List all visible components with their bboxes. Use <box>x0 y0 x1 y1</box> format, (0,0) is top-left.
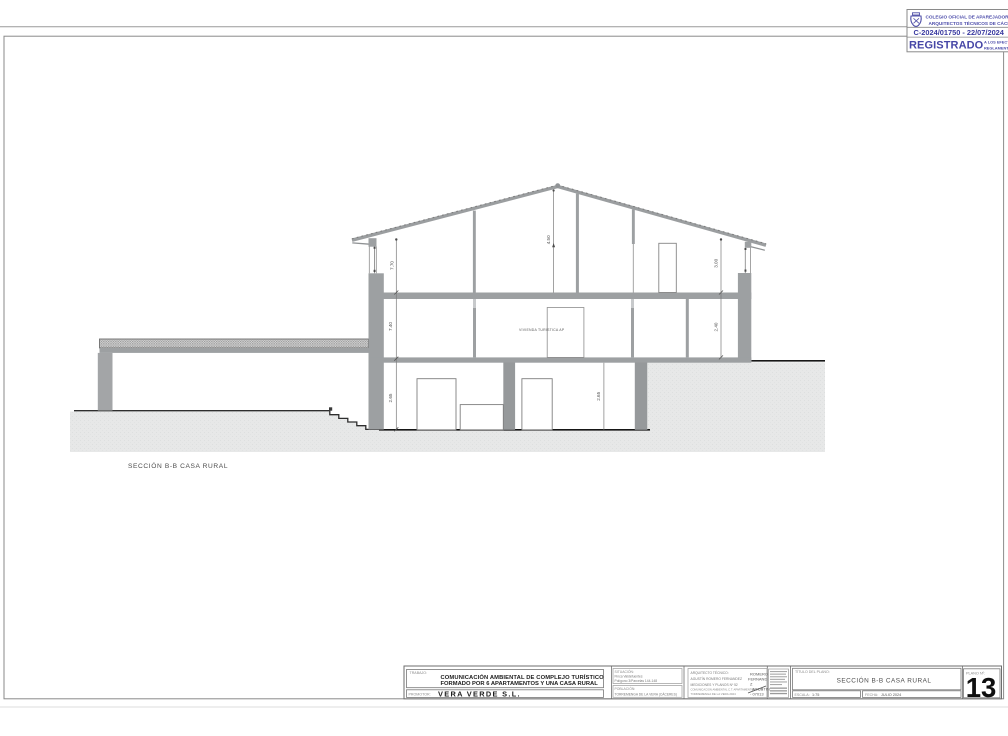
svg-text:JULIO 2024: JULIO 2024 <box>881 693 901 697</box>
svg-text:2.65: 2.65 <box>388 393 393 402</box>
svg-text:1:75: 1:75 <box>812 693 819 697</box>
svg-text:A LOS EFECTOS: A LOS EFECTOS <box>984 40 1008 45</box>
svg-text:COMUNICACIÓN AMBIENTAL DE COMP: COMUNICACIÓN AMBIENTAL DE COMPLEJO TURÍS… <box>441 673 605 681</box>
svg-text:13: 13 <box>966 672 997 703</box>
svg-text:PROMOTOR:: PROMOTOR: <box>409 693 431 697</box>
svg-text:FORMADO POR 6 APARTAMENTOS Y U: FORMADO POR 6 APARTAMENTOS Y UNA CASA RU… <box>441 681 599 687</box>
svg-text:Polígono 3/Parcelas 144-148: Polígono 3/Parcelas 144-148 <box>615 679 658 683</box>
svg-text:- 07013: - 07013 <box>750 691 764 696</box>
svg-text:AGUSTÍN ROMERO FERNANDEZ: AGUSTÍN ROMERO FERNANDEZ <box>691 677 742 681</box>
svg-text:ARQUITECTO TÉCNICO:: ARQUITECTO TÉCNICO: <box>691 670 729 675</box>
svg-text:SECCIÓN B-B CASA RURAL: SECCIÓN B-B CASA RURAL <box>837 676 932 685</box>
svg-text:2.65: 2.65 <box>596 391 601 400</box>
svg-text:2.40: 2.40 <box>714 322 719 331</box>
svg-text:ARQUITECTOS TÉCNICOS DE CÁCERE: ARQUITECTOS TÉCNICOS DE CÁCERES <box>929 19 1008 26</box>
svg-text:TRABAJO:: TRABAJO: <box>410 671 428 675</box>
svg-text:3.00: 3.00 <box>714 258 719 267</box>
svg-text:7.40: 7.40 <box>388 322 393 331</box>
svg-text:ESCALA:: ESCALA: <box>795 693 810 697</box>
svg-text:TORREMENGA DE LA VERA 2024: TORREMENGA DE LA VERA 2024 <box>691 692 737 696</box>
svg-text:REGLAMENTARIO: REGLAMENTARIO <box>984 45 1008 50</box>
svg-text:Finca Valdefuentes: Finca Valdefuentes <box>615 675 643 679</box>
svg-text:FECHA:: FECHA: <box>865 693 878 697</box>
svg-text:VIVIENDA TURISTICA AP: VIVIENDA TURISTICA AP <box>519 328 565 332</box>
svg-text:TORREMENGA DE LA VERA (CÁCERES: TORREMENGA DE LA VERA (CÁCERES) <box>615 692 677 696</box>
svg-text:SITUACIÓN:: SITUACIÓN: <box>615 669 634 674</box>
svg-text:COLEGIO OFICIAL DE APAREJADORE: COLEGIO OFICIAL DE APAREJADORES <box>926 15 1008 20</box>
svg-text:MEDICIONES Y PLANOS Nº 52: MEDICIONES Y PLANOS Nº 52 <box>691 683 738 687</box>
svg-text:TÍTULO DEL PLANO:: TÍTULO DEL PLANO: <box>795 670 830 674</box>
svg-text:7.70: 7.70 <box>390 261 395 270</box>
svg-text:POBLACIÓN:: POBLACIÓN: <box>615 686 636 691</box>
svg-text:C-2024/01750 - 22/07/2024: C-2024/01750 - 22/07/2024 <box>914 28 1005 37</box>
svg-text:REGISTRADO: REGISTRADO <box>909 39 984 51</box>
svg-text:SECCIÓN B-B CASA RURAL: SECCIÓN B-B CASA RURAL <box>128 461 228 470</box>
svg-text:VERA VERDE S.L.: VERA VERDE S.L. <box>438 689 521 698</box>
svg-text:4.50: 4.50 <box>546 235 551 244</box>
